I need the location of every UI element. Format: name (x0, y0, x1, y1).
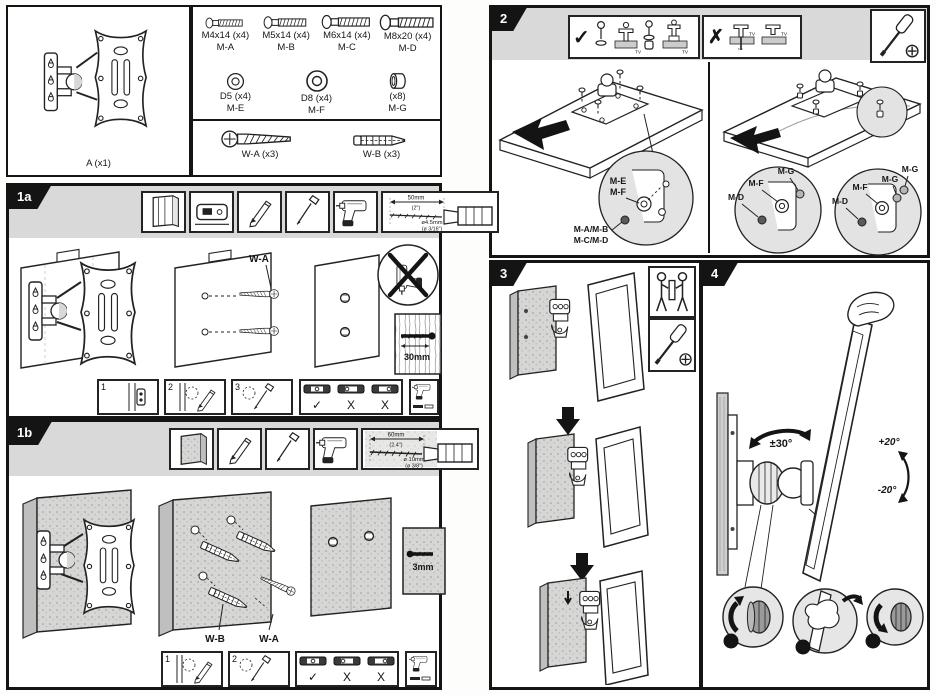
wood-depth-note: 30mm (393, 312, 443, 376)
substep-number: 3 (235, 382, 240, 392)
drill-mini-icon (411, 381, 437, 413)
part-label: W-A (x3) (195, 149, 325, 161)
step-2-divider (708, 62, 710, 253)
drill-depth-label: 60mm (388, 433, 405, 439)
level-ok-mark: ✓ (308, 670, 318, 684)
mount-on-concrete-illustration (13, 482, 145, 648)
screwdriver-tool-box (870, 9, 926, 63)
drill-dia-alt-label: (ø 3/8") (405, 464, 423, 469)
substep-1a-3: 3 (231, 379, 293, 415)
screw-m4-icon (205, 16, 245, 30)
adjustment-illustration: ±30° +20° -20° (705, 265, 927, 687)
adjust-step-2-badge: 2 (800, 643, 805, 653)
level-bad-mark: X (343, 670, 351, 684)
concrete-wall-icon (169, 428, 214, 470)
wall-screw-wa-icon (221, 129, 299, 149)
screw-m8-icon (379, 14, 437, 31)
part-code: M-B (256, 42, 317, 54)
flat-washer-b-label: M-F (610, 187, 626, 197)
wb-callout: W-B (205, 634, 225, 645)
curved-right-mf-label: M-F (852, 182, 867, 192)
washer-d5-icon (226, 72, 245, 91)
panel-step-1b: 1b 60mm (2.4") (6, 419, 442, 690)
level-bad-mark: X (381, 398, 389, 412)
drill-spec-1a: 50mm (2") ø4.5mm (ø 3/16") (381, 191, 499, 233)
screw-parts-row: M4x14 (x4) M-A M5x14 (x4) M-B M6x14 (x4)… (195, 14, 438, 56)
panel-part-a: A (x1) (6, 5, 191, 177)
curved-right-mg1-label: M-G (902, 164, 919, 174)
part-code: M-F (276, 105, 357, 117)
part-item: M6x14 (x4) M-C (317, 14, 378, 56)
punch-hole-mini (230, 653, 288, 685)
punch-hole-mini (233, 381, 291, 413)
panel-step-1a: 1a 50mm (2" (6, 183, 442, 419)
wrong-hardware-box: ✗ TV TV (702, 15, 802, 59)
flat-back-tv-illustration: M-E M-F M-A/M-B M-C/M-D (494, 62, 706, 256)
drill-dia-label: ø 10mm (403, 457, 424, 463)
parts-divider (193, 119, 440, 121)
panel-step-3: 3 (489, 260, 702, 690)
flat-washer-a-label: M-E (610, 176, 627, 186)
tv-tag: TV (749, 32, 756, 38)
part-size: M4x14 (x4) (195, 30, 256, 42)
drill-dia-label: ø4.5mm (421, 220, 442, 226)
part-item: D5 (x4) M-E (195, 69, 276, 118)
washer-d8-icon (305, 69, 329, 93)
part-size: D8 (x4) (276, 93, 357, 105)
spacer-mg-icon (389, 71, 407, 91)
wall-hardware-row: W-A (x3) W-B (x3) (195, 125, 438, 161)
wa-callout-1b: W-A (259, 634, 279, 645)
bracket-a-illustration (22, 13, 178, 145)
level-ok-mark: ✓ (312, 398, 322, 412)
drill-icon (313, 428, 358, 470)
manual-page: A (x1) M4x14 (x4) M-A M5x14 (x4) M-B M6x… (0, 0, 936, 695)
part-item: (x8) M-G (357, 69, 438, 118)
two-person-lift-icon (651, 269, 693, 315)
part-item: M4x14 (x4) M-A (195, 14, 256, 56)
part-item: W-A (x3) (195, 125, 325, 161)
hold-bracket-mini (99, 381, 157, 413)
tilt-range-annotation: +20° -20° (878, 437, 909, 503)
part-code: M-D (377, 43, 438, 55)
awl-icon (285, 191, 330, 233)
depth-note-1a: 30mm (404, 352, 430, 362)
mark-pencil-mini (166, 381, 224, 413)
step-1a-tools: 50mm (2") ø4.5mm (ø 3/16") (141, 191, 499, 233)
drill-depth-label: 50mm (408, 196, 425, 202)
screwdriver-tool-box-3 (648, 318, 696, 372)
mark-pencil-mini (163, 653, 221, 685)
substep-1a-1: 1 (97, 379, 159, 415)
part-code: M-C (317, 42, 378, 54)
substep-1b-1: 1 (161, 651, 223, 687)
level-check-box-1a: ✓ X X (299, 379, 403, 415)
depth-note-1b: 3mm (412, 562, 433, 572)
wall-anchor-wb-icon (352, 132, 410, 149)
screw-m6-icon (321, 14, 373, 30)
curved-left-mg-label: M-G (778, 166, 795, 176)
drill-tool-box-1a (409, 379, 439, 415)
correct-hardware-box: ✓ TV TV (568, 15, 700, 59)
part-code: M-G (357, 103, 438, 115)
part-label: W-B (x3) (325, 149, 438, 161)
curved-left-mf-label: M-F (748, 178, 763, 188)
hang-step-2 (528, 427, 648, 547)
curved-right-md-label: M-D (832, 196, 848, 206)
panel-step-4: 4 ±30° +20° (700, 260, 930, 690)
substep-1a-2: 2 (164, 379, 226, 415)
tv-tag: TV (682, 50, 689, 56)
tv-tag: TV (781, 32, 788, 38)
hang-step-1 (510, 273, 644, 401)
level-bad-mark: X (347, 398, 355, 412)
curved-right-mg2-label: M-G (882, 174, 899, 184)
level-check-box-1b: ✓ X X (295, 651, 399, 687)
part-a-label: A (x1) (8, 158, 189, 170)
spacer-parts-row: D5 (x4) M-E D8 (x4) M-F (x8) M-G (195, 69, 438, 118)
step-1b-tools: 60mm (2.4") ø 10mm (ø 3/8") (169, 428, 479, 470)
substep-number: 1 (165, 654, 170, 664)
panel-parts-list: M4x14 (x4) M-A M5x14 (x4) M-B M6x14 (x4)… (191, 5, 442, 177)
awl-icon (265, 428, 310, 470)
pencil-icon (237, 191, 282, 233)
level-checks-illustration: ✓ X X (297, 653, 397, 685)
part-item: D8 (x4) M-F (276, 69, 357, 118)
drill-mini-icon (407, 653, 435, 685)
drill-tool-box-1b (405, 651, 437, 687)
swivel-range-label: ±30° (770, 438, 793, 450)
wood-screw-insert-illustration: W-A (167, 244, 305, 378)
concrete-depth-note: 3mm (401, 526, 447, 596)
screw-m5-icon (263, 15, 309, 30)
level-bad-mark: X (377, 670, 385, 684)
tv-tag: TV (635, 50, 642, 56)
part-size: M6x14 (x4) (317, 30, 378, 42)
flat-screws-cd-label: M-C/M-D (574, 235, 608, 245)
tilt-up-label: +20° (879, 437, 901, 448)
curved-back-tv-illustration: M-G M-F M-D M-G M-G M-F M-D (714, 62, 930, 256)
level-checks-illustration: ✓ X X (301, 381, 401, 413)
swivel-range-annotation: ±30° (749, 429, 811, 450)
substep-1b-2: 2 (228, 651, 290, 687)
check-mark: ✓ (570, 25, 593, 50)
drill-depth-alt-label: (2") (412, 206, 421, 212)
substep-number: 2 (232, 654, 237, 664)
part-item: W-B (x3) (325, 125, 438, 161)
tilt-down-label: -20° (878, 485, 897, 496)
wa-callout-1a: W-A (249, 254, 269, 265)
substep-number: 2 (168, 382, 173, 392)
two-person-lift-box (648, 266, 696, 318)
wood-wall-icon (141, 191, 186, 233)
flat-screws-ab-label: M-A/M-B (574, 224, 608, 234)
wrong-hardware-icons: TV TV (728, 19, 790, 55)
drill-depth-alt-label: (2.4") (389, 443, 402, 449)
anchor-insert-illustration: W-B W-A (147, 482, 299, 650)
no-power-drill-warning (375, 242, 441, 308)
part-item: M5x14 (x4) M-B (256, 14, 317, 56)
mount-on-wood-wall-illustration (15, 242, 165, 376)
stud-finder-icon (189, 191, 234, 233)
drill-spec-1b: 60mm (2.4") ø 10mm (ø 3/8") (361, 428, 479, 470)
substep-number: 1 (101, 382, 106, 392)
drill-dia-alt-label: (ø 3/16") (422, 227, 443, 232)
cross-mark: ✗ (704, 26, 728, 49)
drill-icon (333, 191, 378, 233)
adjust-step-1-badge: 1 (728, 637, 733, 647)
adjust-step-3-badge: 3 (870, 637, 875, 647)
part-code: M-A (195, 42, 256, 54)
part-size: (x8) (357, 91, 438, 103)
pencil-icon (217, 428, 262, 470)
concrete-fastened-illustration (303, 486, 399, 626)
part-size: M5x14 (x4) (256, 30, 317, 42)
hang-step-3 (540, 571, 648, 685)
part-size: D5 (x4) (195, 91, 276, 103)
panel-step-2: 2 ✓ TV (489, 5, 930, 258)
curved-left-md-label: M-D (728, 192, 744, 202)
part-item: M8x20 (x4) M-D (377, 14, 438, 56)
part-code: M-E (195, 103, 276, 115)
part-size: M8x20 (x4) (377, 31, 438, 43)
correct-hardware-icons: TV TV (593, 19, 693, 55)
